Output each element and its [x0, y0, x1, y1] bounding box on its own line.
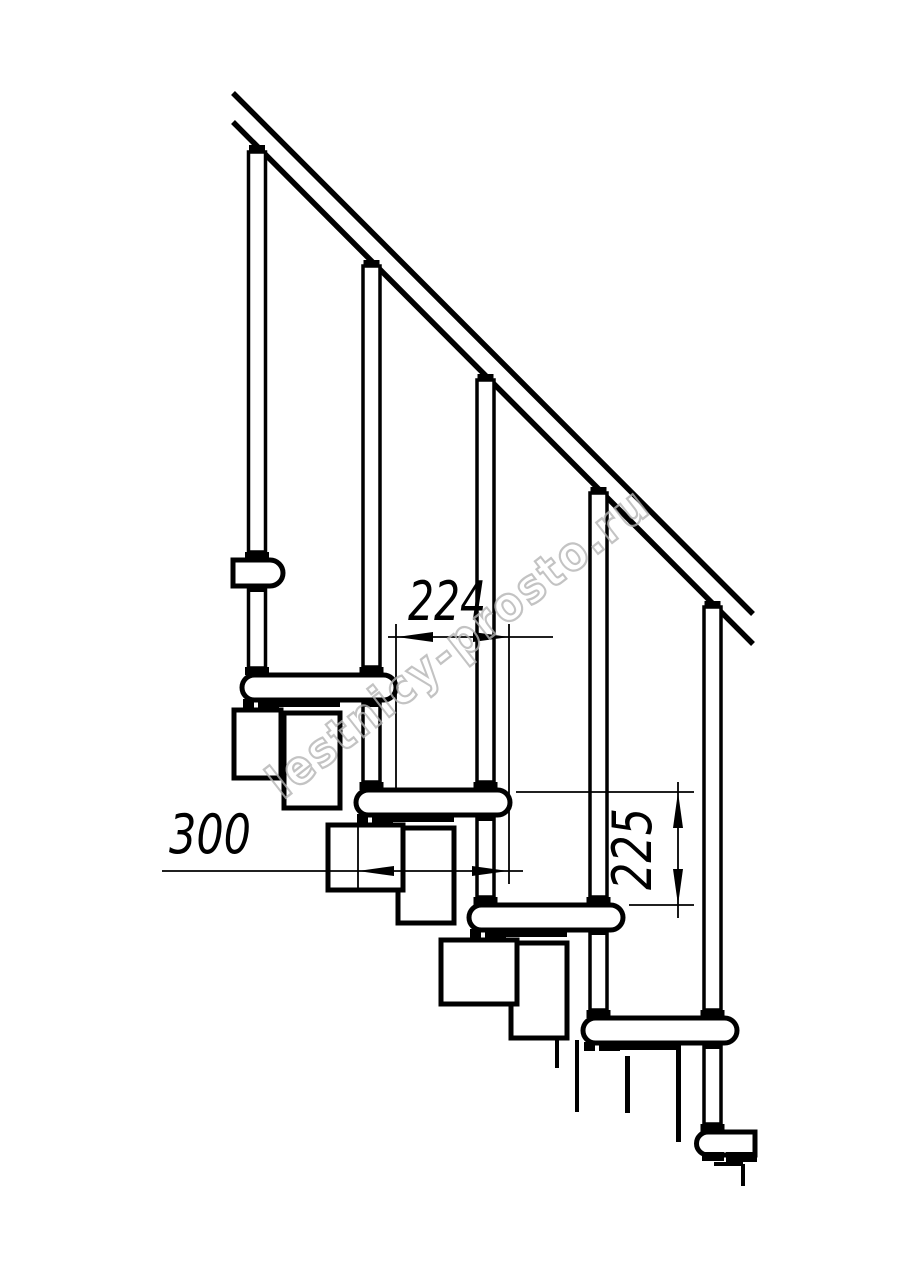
bracket-foot [726, 1152, 757, 1162]
tread-4 [583, 1018, 737, 1043]
floor-bracket-body [697, 1132, 756, 1155]
stringer-box-2 [328, 825, 403, 890]
baluster-rod [363, 266, 380, 667]
module-plate [617, 1042, 681, 1050]
baluster-lower-rod [590, 926, 607, 1010]
dim-value-225: 225 [601, 808, 664, 890]
baluster-rod [704, 607, 721, 1010]
arrowhead-up [673, 792, 683, 828]
module-foot [243, 699, 254, 708]
baluster-lower-rod [704, 1040, 721, 1124]
baluster-rod [249, 152, 266, 552]
floor-bracket [697, 1132, 758, 1186]
stringer-column-4 [628, 1046, 679, 1142]
module-plate [390, 814, 454, 822]
stringer-box-3 [441, 940, 517, 1004]
tread-3 [469, 905, 623, 930]
baluster-1 [245, 145, 269, 675]
module-foot [470, 929, 481, 938]
baluster-lower-rod [249, 584, 266, 668]
stringer-column-2 [398, 828, 454, 923]
drawing-canvas: 224 300 225 lestnicy-prosto.ru [0, 0, 914, 1280]
tread-0 [233, 560, 283, 586]
module-foot [485, 929, 506, 938]
module-plate [276, 699, 340, 707]
staircase-drawing: 224 300 225 lestnicy-prosto.ru [0, 0, 914, 1280]
module-foot [599, 1042, 620, 1051]
module-foot [258, 699, 279, 708]
module-foot [584, 1042, 595, 1051]
tread-2 [356, 790, 510, 815]
module-foot [372, 814, 393, 823]
dim-value-300: 300 [169, 803, 251, 866]
bracket-foot [702, 1152, 724, 1161]
baluster-lower-rod [477, 812, 494, 897]
arrowhead-down [673, 869, 683, 905]
tread-0-nose [233, 560, 283, 586]
baluster-5 [701, 601, 725, 1132]
module-plate [503, 929, 567, 937]
